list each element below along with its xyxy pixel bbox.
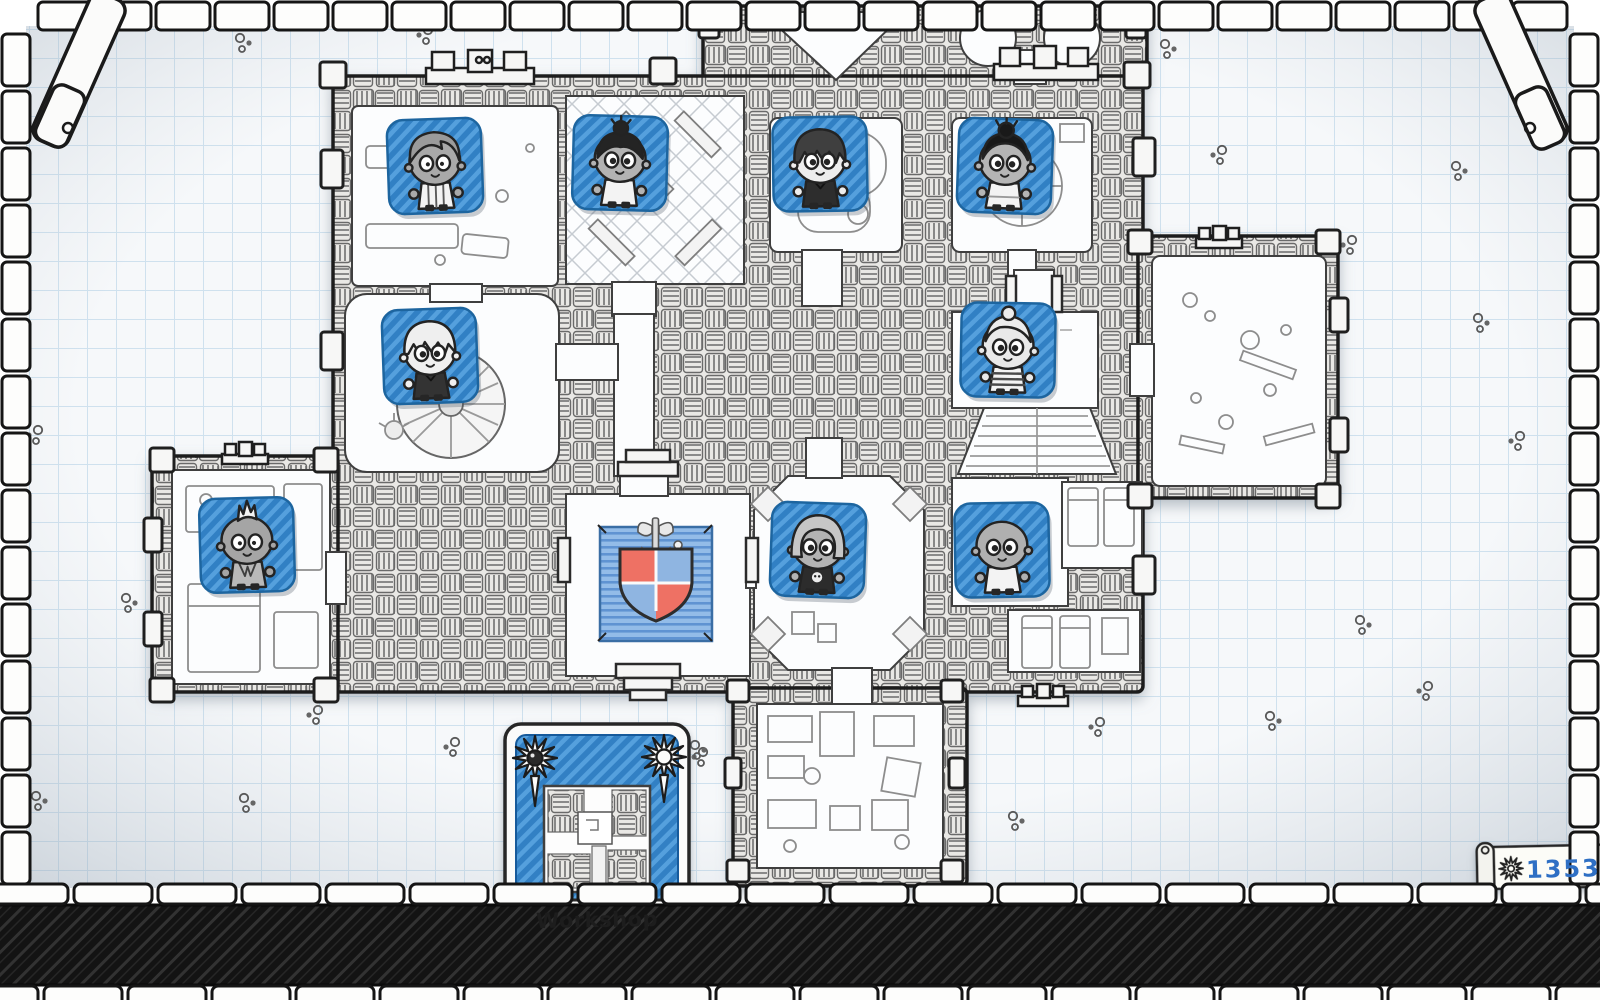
adventurer-tile-black-bun[interactable] (956, 116, 1056, 219)
location-card-label: Workshop (524, 902, 671, 939)
map-room[interactable] (1008, 610, 1140, 672)
gold-amount: 13531 (1526, 851, 1600, 887)
adventurer-tile-shaggy[interactable] (772, 116, 871, 217)
guild-emblem-rug (598, 518, 712, 641)
game-screen: Workshop 13531 (0, 0, 1600, 1000)
adventurer-tile-grey-sidepart[interactable] (386, 117, 486, 219)
map-room[interactable] (1152, 256, 1326, 486)
adventurer-tile-bald[interactable] (954, 502, 1053, 603)
adventurer-tile-granny[interactable] (960, 302, 1059, 403)
map-scene (0, 0, 1600, 1000)
adventurer-tile-grey-bob[interactable] (769, 501, 869, 603)
adventurer-tile-topknot[interactable] (572, 115, 672, 217)
adventurer-tile-white-messy[interactable] (381, 307, 481, 409)
card-minimap (544, 786, 650, 892)
adventurer-tile-mohawk[interactable] (199, 497, 299, 599)
